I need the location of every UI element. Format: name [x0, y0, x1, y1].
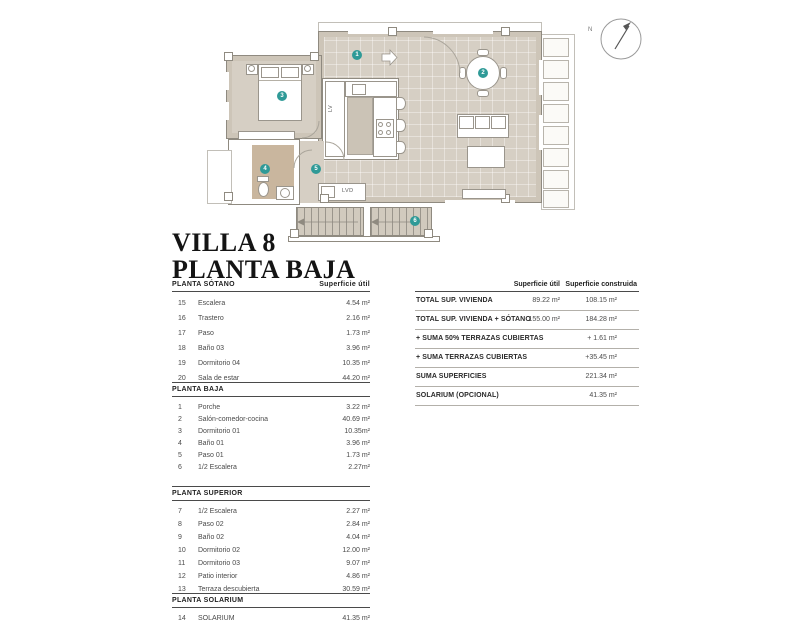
summary-row: TOTAL SUP. VIVIENDA + SÓTANO 155.00 m² 1… [415, 311, 639, 330]
title-line1: VILLA 8 [172, 229, 355, 256]
room-number: 14 [178, 615, 198, 622]
table-row: 17Paso1.73 m² [172, 326, 370, 341]
section-header: PLANTA BAJA [172, 382, 370, 397]
room-number: 8 [178, 521, 198, 528]
summary-row: SOLARIUM (OPCIONAL) 41.35 m² [415, 387, 639, 406]
room-label: Trastero [198, 315, 346, 322]
table-planta-superior: PLANTA SUPERIOR 71/2 Escalera2.27 m² 8Pa… [172, 486, 370, 596]
room-number: 7 [178, 508, 198, 515]
room-number: 10 [178, 547, 198, 554]
door-arc [302, 121, 319, 138]
room-label: Escalera [198, 300, 346, 307]
room-number: 16 [178, 315, 198, 322]
stairs-direction-arrow [371, 219, 378, 226]
room-number: 2 [178, 416, 198, 423]
summary-row: + SUMA 50% TERRAZAS CUBIERTAS + 1.61 m² [415, 330, 639, 349]
room-area: 10.35 m² [342, 360, 370, 367]
room-marker-4: 4 [260, 164, 270, 174]
table-row: 14SOLARIUM41.35 m² [172, 612, 370, 625]
summary-label: + SUMA 50% TERRAZAS CUBIERTAS [416, 335, 544, 342]
summary-label: + SUMA TERRAZAS CUBIERTAS [416, 354, 527, 361]
summary-construida: 184.28 m² [585, 316, 617, 323]
room-label: Dormitorio 03 [198, 560, 346, 567]
section-title: PLANTA SUPERIOR [172, 490, 243, 497]
page-title: VILLA 8 PLANTA BAJA [172, 229, 355, 283]
table-row: 8Paso 022.84 m² [172, 518, 370, 531]
room-label: 1/2 Escalera [198, 508, 346, 515]
table-row: 5Paso 011.73 m² [172, 449, 370, 461]
room-area: 3.22 m² [346, 404, 370, 411]
room-area: 40.69 m² [342, 416, 370, 423]
room-label: Paso 02 [198, 521, 346, 528]
table-row: 9Baño 024.04 m² [172, 531, 370, 544]
section-header: PLANTA SOLARIUM [172, 593, 370, 608]
room-label: Baño 03 [198, 345, 346, 352]
section-title: PLANTA BAJA [172, 386, 224, 393]
compass-icon [598, 15, 644, 61]
room-label: Dormitorio 01 [198, 428, 344, 435]
col-header-construida: Superficie construida [565, 281, 637, 288]
room-area: 9.07 m² [346, 560, 370, 567]
room-number: 20 [178, 375, 198, 382]
room-number: 1 [178, 404, 198, 411]
table-row: 71/2 Escalera2.27 m² [172, 505, 370, 518]
room-marker-5: 5 [311, 164, 321, 174]
room-area: 3.96 m² [346, 440, 370, 447]
section-title: PLANTA SÓTANO [172, 281, 235, 288]
room-label: Salón-comedor-cocina [198, 416, 342, 423]
summary-util: 89.22 m² [532, 297, 560, 304]
room-area: 41.35 m² [342, 615, 370, 622]
room-number: 9 [178, 534, 198, 541]
room-label: Dormitorio 02 [198, 547, 342, 554]
door-arc [294, 150, 312, 168]
room-area: 2.27 m² [346, 508, 370, 515]
room-label: Dormitorio 04 [198, 360, 342, 367]
room-marker-2: 2 [478, 68, 488, 78]
plan-linework [0, 0, 800, 260]
room-marker-3: 3 [277, 91, 287, 101]
room-number: 12 [178, 573, 198, 580]
room-number: 6 [178, 464, 198, 471]
room-label: Paso 01 [198, 452, 346, 459]
room-number: 17 [178, 330, 198, 337]
table-planta-baja: PLANTA BAJA 1Porche3.22 m² 2Salón-comedo… [172, 382, 370, 473]
table-planta-solarium: PLANTA SOLARIUM 14SOLARIUM41.35 m² [172, 593, 370, 625]
room-marker-6: 6 [410, 216, 420, 226]
summary-header: Superficie útil Superficie construida [415, 276, 639, 292]
room-number: 11 [178, 560, 198, 567]
summary-table: Superficie útil Superficie construida TO… [415, 276, 639, 406]
table-row: 18Baño 033.96 m² [172, 341, 370, 356]
table-row: 1Porche3.22 m² [172, 401, 370, 413]
room-area: 12.00 m² [342, 547, 370, 554]
room-area: 2.16 m² [346, 315, 370, 322]
summary-label: TOTAL SUP. VIVIENDA [416, 297, 493, 304]
table-row: 15Escalera4.54 m² [172, 296, 370, 311]
room-number: 13 [178, 586, 198, 593]
room-area: 10.35m² [344, 428, 370, 435]
room-label: SOLARIUM [198, 615, 342, 622]
summary-construida: 108.15 m² [585, 297, 617, 304]
room-area: 2.84 m² [346, 521, 370, 528]
section-header: PLANTA SÓTANO Superficie útil [172, 278, 370, 292]
room-number: 15 [178, 300, 198, 307]
room-area: 30.59 m² [342, 586, 370, 593]
summary-row: + SUMA TERRAZAS CUBIERTAS +35.45 m² [415, 349, 639, 368]
room-label: Sala de estar [198, 375, 342, 382]
room-area: 4.54 m² [346, 300, 370, 307]
room-number: 5 [178, 452, 198, 459]
room-label: Terraza descubierta [198, 586, 342, 593]
room-label: Patio interior [198, 573, 346, 580]
room-number: 19 [178, 360, 198, 367]
room-label: Baño 01 [198, 440, 346, 447]
room-number: 18 [178, 345, 198, 352]
room-area: 1.73 m² [346, 452, 370, 459]
room-area: 2.27m² [348, 464, 370, 471]
summary-construida: 221.34 m² [585, 373, 617, 380]
room-label: 1/2 Escalera [198, 464, 348, 471]
summary-construida: + 1.61 m² [587, 335, 617, 342]
room-number: 4 [178, 440, 198, 447]
col-header-util: Superficie útil [514, 281, 560, 288]
table-row: 11Dormitorio 039.07 m² [172, 557, 370, 570]
door-arc [326, 142, 344, 160]
room-area: 4.04 m² [346, 534, 370, 541]
floor-plan: LV LVD [0, 0, 800, 260]
section-header: PLANTA SUPERIOR [172, 486, 370, 501]
room-label: Baño 02 [198, 534, 346, 541]
room-label: Paso [198, 330, 346, 337]
summary-row: SUMA SUPERFICIES 221.34 m² [415, 368, 639, 387]
summary-label: SOLARIUM (OPCIONAL) [416, 392, 499, 399]
summary-label: SUMA SUPERFICIES [416, 373, 487, 380]
room-area: 1.73 m² [346, 330, 370, 337]
room-area: 44.20 m² [342, 375, 370, 382]
entry-arrow-icon [382, 50, 397, 65]
room-label: Porche [198, 404, 346, 411]
room-number: 3 [178, 428, 198, 435]
stairs-direction-arrow [297, 219, 304, 226]
north-label: N [588, 27, 592, 33]
summary-construida: +35.45 m² [585, 354, 617, 361]
summary-row: TOTAL SUP. VIVIENDA 89.22 m² 108.15 m² [415, 292, 639, 311]
summary-construida: 41.35 m² [589, 392, 617, 399]
table-row: 12Patio interior4.86 m² [172, 570, 370, 583]
door-arc [424, 37, 460, 73]
room-area: 4.86 m² [346, 573, 370, 580]
table-row: 4Baño 013.96 m² [172, 437, 370, 449]
table-row: 10Dormitorio 0212.00 m² [172, 544, 370, 557]
summary-util: 155.00 m² [528, 316, 560, 323]
table-row: 19Dormitorio 0410.35 m² [172, 356, 370, 371]
room-marker-1: 1 [352, 50, 362, 60]
section-title: PLANTA SOLARIUM [172, 597, 243, 604]
table-planta-sotano: PLANTA SÓTANO Superficie útil 15Escalera… [172, 278, 370, 386]
table-row: 16Trastero2.16 m² [172, 311, 370, 326]
table-row: 3Dormitorio 0110.35m² [172, 425, 370, 437]
table-row: 61/2 Escalera2.27m² [172, 461, 370, 473]
table-row: 2Salón-comedor-cocina40.69 m² [172, 413, 370, 425]
column-header: Superficie útil [319, 281, 370, 288]
summary-label: TOTAL SUP. VIVIENDA + SÓTANO [416, 316, 531, 323]
room-area: 3.96 m² [346, 345, 370, 352]
